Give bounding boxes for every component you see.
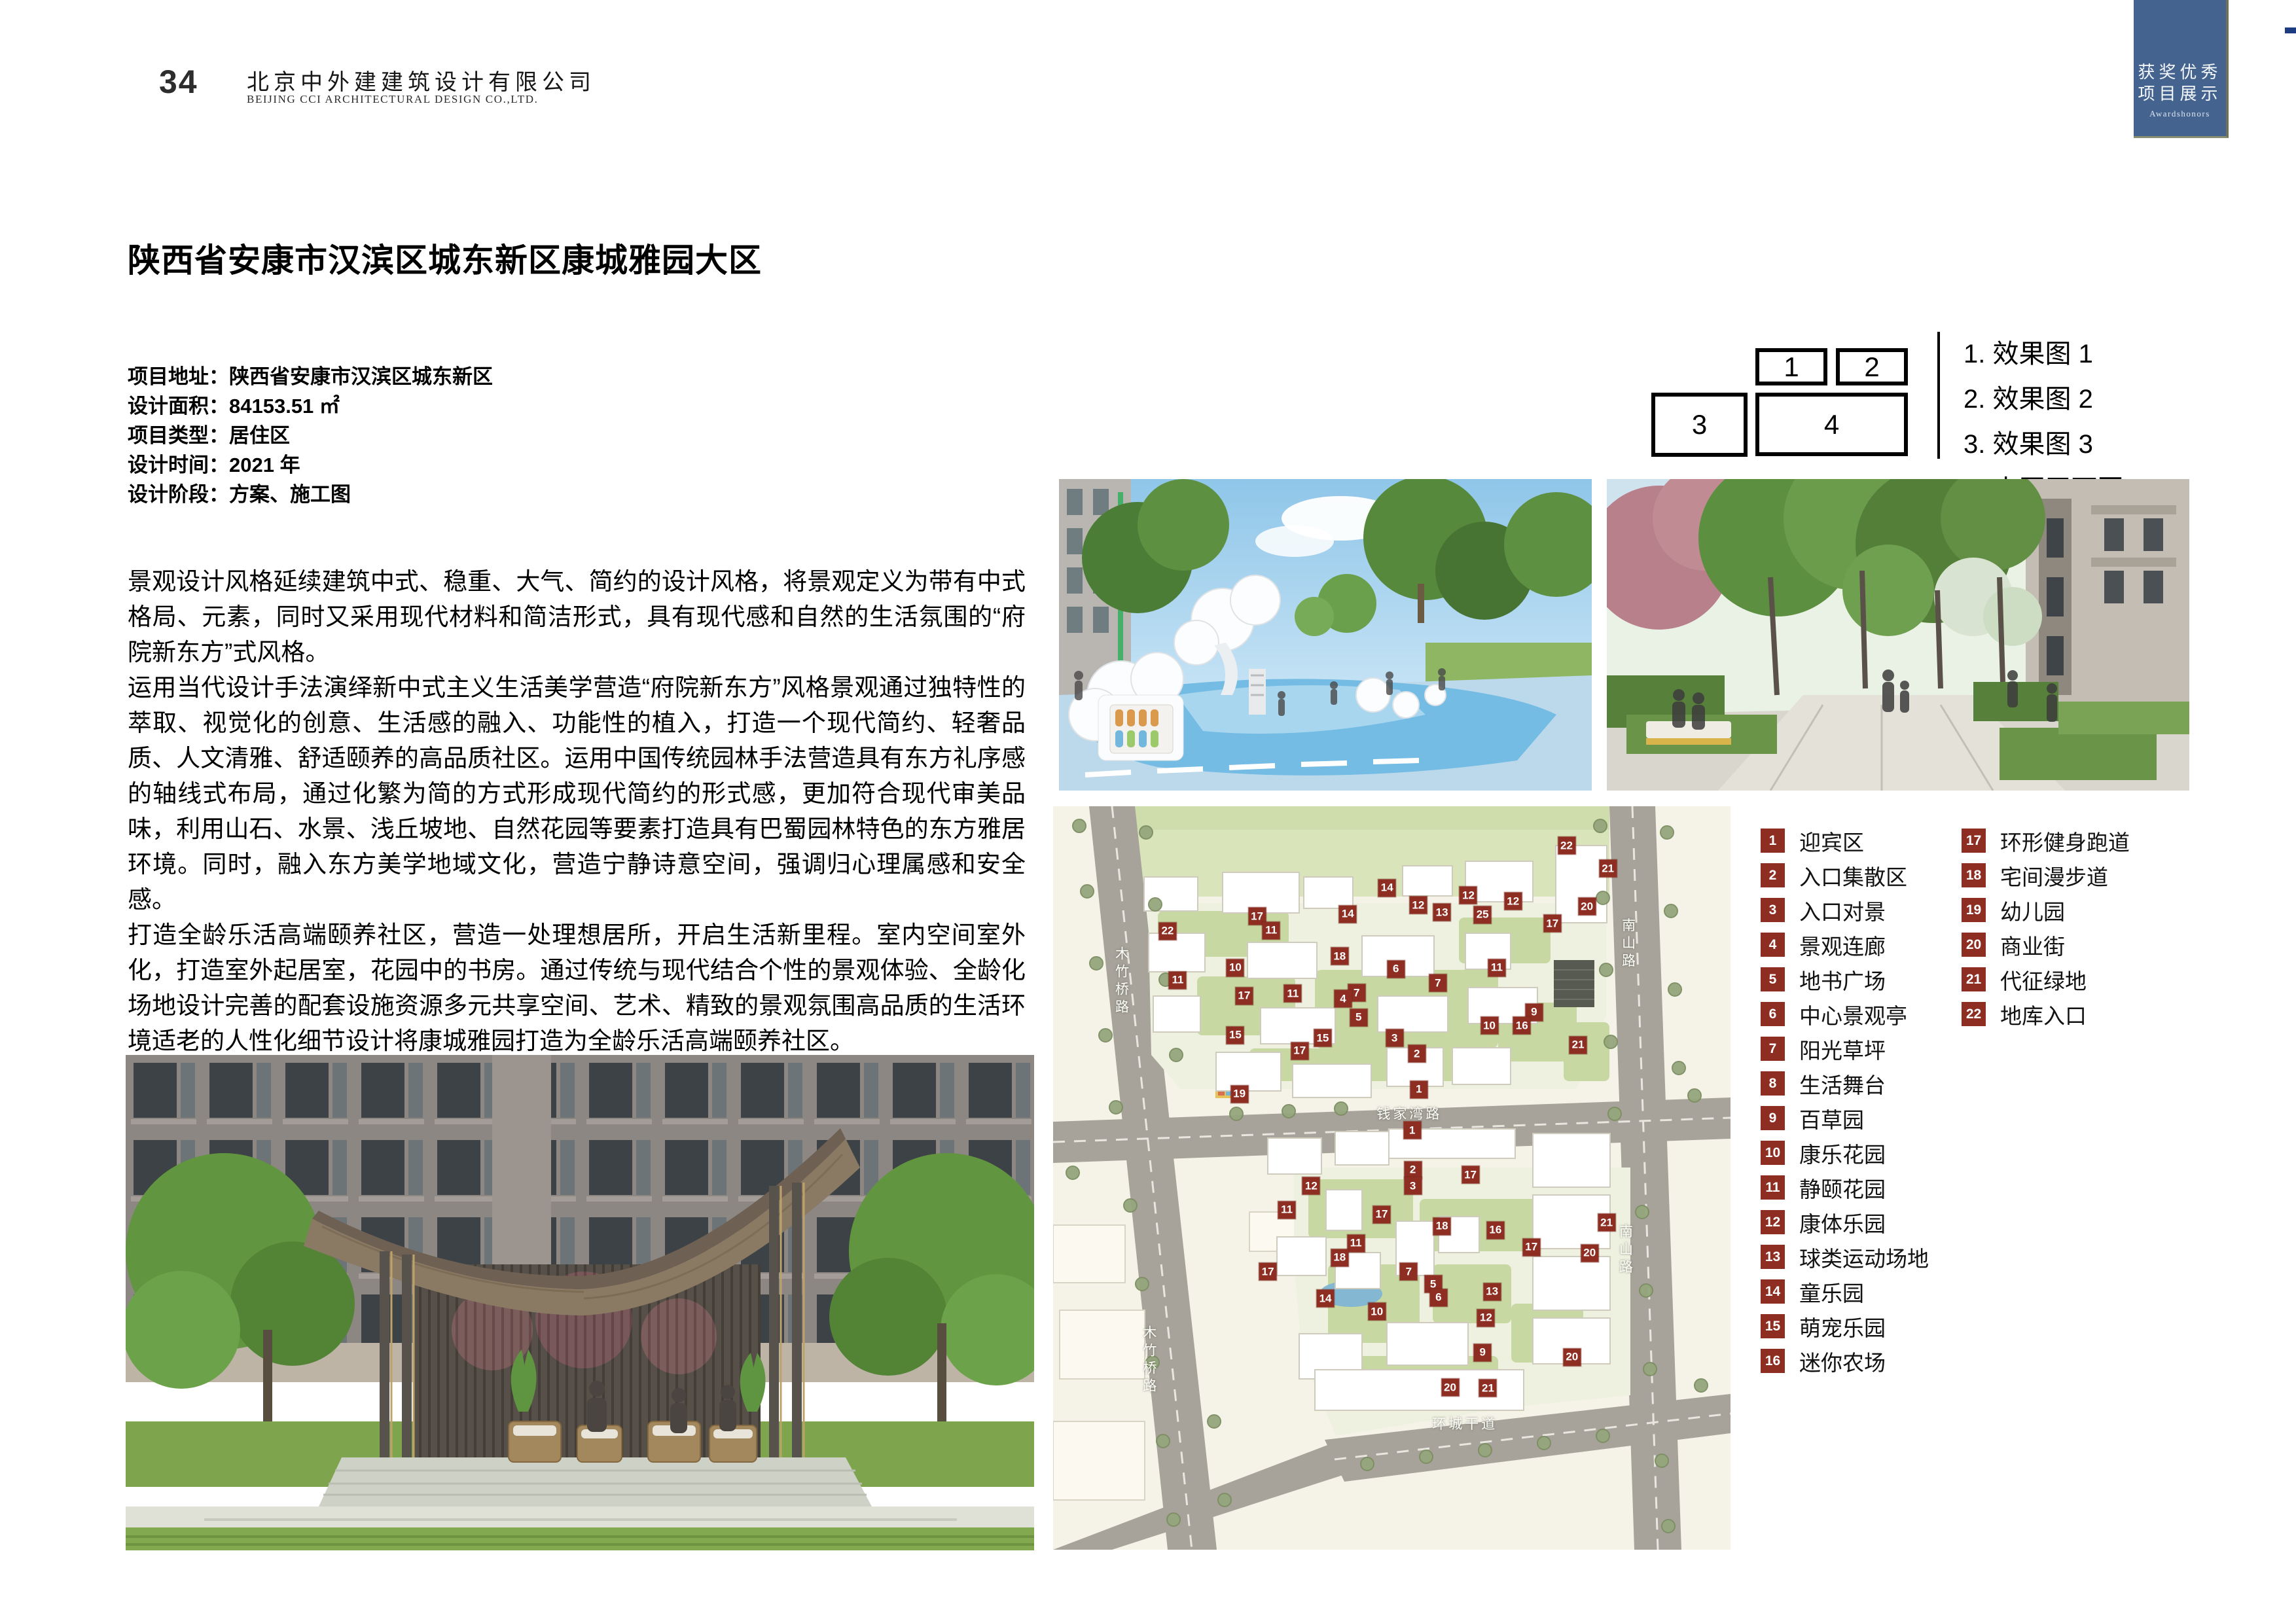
legend-label: 宅间漫步道 — [2000, 860, 2108, 891]
legend-row: 19幼儿园 — [1962, 898, 2130, 922]
legend-row: 4景观连廊 — [1761, 933, 1929, 957]
legend-row: 1迎宾区 — [1761, 829, 1929, 853]
plan-marker: 4 — [1334, 990, 1352, 1008]
plan-marker: 20 — [1441, 1379, 1459, 1397]
corner-tab-line1: 获奖优秀 — [2138, 62, 2221, 83]
info-label: 设计阶段 — [128, 483, 229, 506]
legend-number-badge: 14 — [1761, 1279, 1785, 1304]
plan-marker: 10 — [1368, 1303, 1386, 1321]
legend-row: 22地库入口 — [1962, 1002, 2130, 1026]
legend-row: 14童乐园 — [1761, 1279, 1929, 1304]
page-number: 34 — [159, 63, 198, 101]
plan-marker: 12 — [1504, 893, 1522, 910]
description-paragraph-1: 景观设计风格延续建筑中式、稳重、大气、简约的设计风格，将景观定义为带有中式格局、… — [128, 564, 1026, 670]
plan-marker: 18 — [1331, 1249, 1348, 1266]
legend-row: 2入口集散区 — [1761, 863, 1929, 887]
render-image-1-playground — [1059, 479, 1592, 791]
plan-marker: 14 — [1339, 905, 1357, 923]
road-label: 南山路 — [1615, 1224, 1635, 1277]
plan-legend: 1迎宾区2入口集散区3入口对景4景观连廊5地书广场6中心景观亭7阳光草坪8生活舞… — [1761, 829, 2193, 1404]
plan-marker: 12 — [1302, 1177, 1320, 1195]
plan-marker: 11 — [1488, 959, 1505, 976]
plan-marker: 11 — [1169, 971, 1187, 989]
plan-marker: 13 — [1433, 904, 1451, 921]
key-divider-line — [1937, 332, 1940, 459]
info-row: 项目类型居住区 — [128, 421, 848, 450]
plan-marker: 3 — [1386, 1029, 1403, 1047]
legend-row: 16迷你农场 — [1761, 1349, 1929, 1373]
info-value: 方案、施工图 — [229, 483, 351, 506]
info-label: 设计面积 — [128, 395, 229, 418]
project-info-block: 项目地址陕西省安康市汉滨区城东新区设计面积84153.51 ㎡项目类型居住区设计… — [128, 362, 848, 509]
legend-number-badge: 19 — [1962, 898, 1986, 922]
plan-marker: 21 — [1599, 860, 1617, 878]
plan-marker: 17 — [1462, 1166, 1479, 1184]
legend-row: 18宅间漫步道 — [1962, 863, 2130, 887]
legend-label: 童乐园 — [1799, 1276, 1864, 1308]
legend-label: 阳光草坪 — [1799, 1033, 1886, 1065]
key-box-1: 1 — [1755, 348, 1827, 385]
legend-number-badge: 7 — [1761, 1037, 1785, 1061]
legend-column-2: 17环形健身跑道18宅间漫步道19幼儿园20商业街21代征绿地22地库入口 — [1962, 829, 2130, 1037]
legend-row: 10康乐花园 — [1761, 1141, 1929, 1165]
road-label: 南山路 — [1618, 918, 1638, 971]
plan-marker: 14 — [1378, 879, 1396, 897]
legend-number-badge: 12 — [1761, 1210, 1785, 1234]
key-caption: 1. 效果图 1 — [1964, 332, 2123, 377]
legend-label: 地库入口 — [2000, 999, 2087, 1030]
legend-label: 百草园 — [1799, 1103, 1864, 1134]
plan-marker: 17 — [1372, 1205, 1390, 1223]
plan-marker: 11 — [1347, 1234, 1365, 1252]
site-plan-image: 2221141212132512201714171122186101177417… — [1053, 806, 1731, 1550]
description-paragraph-3: 打造全龄乐活高端颐养社区，营造一处理想居所，开启生活新里程。室内空间室外化，打造… — [128, 918, 1026, 1059]
playground-illustration — [1059, 479, 1592, 791]
road-label: 环城干道 — [1432, 1414, 1498, 1433]
plan-marker: 9 — [1474, 1344, 1492, 1361]
plan-marker: 2 — [1408, 1045, 1426, 1063]
road-label: 木竹桥路 — [1139, 1325, 1158, 1396]
legend-column-1: 1迎宾区2入口集散区3入口对景4景观连廊5地书广场6中心景观亭7阳光草坪8生活舞… — [1761, 829, 1929, 1383]
plan-marker: 1 — [1410, 1080, 1427, 1098]
legend-number-badge: 13 — [1761, 1245, 1785, 1269]
plan-marker: 17 — [1235, 987, 1253, 1005]
key-box-4: 4 — [1755, 393, 1908, 456]
legend-row: 20商业街 — [1962, 933, 2130, 957]
plan-marker: 10 — [1227, 959, 1244, 976]
legend-number-badge: 8 — [1761, 1071, 1785, 1096]
legend-label: 康乐花园 — [1799, 1137, 1886, 1169]
legend-number-badge: 5 — [1761, 967, 1785, 991]
plan-marker: 21 — [1479, 1380, 1497, 1397]
plan-marker: 22 — [1558, 837, 1575, 855]
render-image-2-walkway — [1607, 479, 2189, 791]
plan-marker: 16 — [1513, 1017, 1531, 1035]
legend-label: 康体乐园 — [1799, 1207, 1886, 1238]
legend-row: 8生活舞台 — [1761, 1071, 1929, 1096]
plan-marker: 19 — [1230, 1085, 1248, 1103]
legend-label: 商业街 — [2000, 929, 2065, 961]
plan-marker: 11 — [1278, 1201, 1296, 1219]
image-key-diagram: 1 2 3 4 1. 效果图 12. 效果图 23. 效果图 34. 小区平面图 — [1649, 330, 2179, 465]
legend-row: 6中心景观亭 — [1761, 1002, 1929, 1026]
info-value: 陕西省安康市汉滨区城东新区 — [229, 365, 493, 388]
plan-marker: 20 — [1578, 898, 1596, 916]
info-value: 84153.51 ㎡ — [229, 395, 340, 418]
awards-corner-tab: 获奖优秀 项目展示 Awardshonors — [2134, 0, 2229, 138]
site-plan-overlay: 2221141212132512201714171122186101177417… — [1053, 806, 1731, 1550]
plan-marker: 15 — [1227, 1026, 1244, 1044]
legend-row: 13球类运动场地 — [1761, 1245, 1929, 1269]
plan-marker: 2 — [1404, 1161, 1422, 1179]
company-name-en: BEIJING CCI ARCHITECTURAL DESIGN CO.,LTD… — [247, 93, 538, 106]
page-title: 陕西省安康市汉滨区城东新区康城雅园大区 — [128, 234, 1109, 281]
legend-label: 地书广场 — [1799, 964, 1886, 995]
legend-row: 15萌宠乐园 — [1761, 1314, 1929, 1338]
corner-tab-subtitle: Awardshonors — [2149, 109, 2210, 119]
info-label: 设计时间 — [128, 454, 229, 476]
legend-number-badge: 22 — [1962, 1002, 1986, 1026]
legend-number-badge: 9 — [1761, 1106, 1785, 1130]
legend-label: 入口集散区 — [1799, 860, 1907, 891]
key-caption: 2. 效果图 2 — [1964, 377, 2123, 422]
legend-number-badge: 11 — [1761, 1175, 1785, 1200]
key-box-3: 3 — [1651, 393, 1748, 457]
legend-row: 17环形健身跑道 — [1962, 829, 2130, 853]
portfolio-page: 34 北京中外建建筑设计有限公司 BEIJING CCI ARCHITECTUR… — [0, 0, 2296, 1623]
plan-marker: 20 — [1581, 1244, 1598, 1262]
plan-marker: 21 — [1598, 1214, 1615, 1232]
legend-number-badge: 15 — [1761, 1314, 1785, 1338]
legend-label: 幼儿园 — [2000, 895, 2065, 926]
walkway-illustration — [1607, 479, 2189, 791]
plan-marker: 16 — [1486, 1221, 1504, 1239]
plan-marker: 21 — [1570, 1036, 1587, 1054]
legend-row: 5地书广场 — [1761, 967, 1929, 991]
plan-marker: 6 — [1387, 960, 1405, 978]
info-row: 设计阶段方案、施工图 — [128, 480, 848, 509]
plan-marker: 17 — [1291, 1042, 1308, 1060]
info-row: 项目地址陕西省安康市汉滨区城东新区 — [128, 362, 848, 391]
legend-label: 球类运动场地 — [1799, 1241, 1929, 1273]
legend-label: 环形健身跑道 — [2000, 825, 2130, 857]
plan-marker: 10 — [1480, 1017, 1498, 1035]
plan-marker: 14 — [1317, 1290, 1335, 1308]
legend-row: 9百草园 — [1761, 1106, 1929, 1130]
plan-marker: 13 — [1483, 1283, 1501, 1300]
key-caption: 3. 效果图 3 — [1964, 422, 2123, 467]
legend-label: 静颐花园 — [1799, 1172, 1886, 1204]
plan-marker: 12 — [1477, 1309, 1495, 1327]
legend-row: 3入口对景 — [1761, 898, 1929, 922]
plan-marker: 1 — [1403, 1122, 1421, 1139]
plan-marker: 20 — [1563, 1348, 1581, 1366]
plan-marker: 5 — [1350, 1008, 1367, 1026]
legend-label: 景观连廊 — [1799, 929, 1886, 961]
plan-marker: 11 — [1284, 985, 1302, 1003]
legend-number-badge: 2 — [1761, 863, 1785, 887]
legend-row: 7阳光草坪 — [1761, 1037, 1929, 1061]
project-description: 景观设计风格延续建筑中式、稳重、大气、简约的设计风格，将景观定义为带有中式格局、… — [128, 564, 1026, 1059]
plan-marker: 6 — [1429, 1289, 1447, 1306]
plan-marker: 15 — [1314, 1029, 1331, 1047]
legend-number-badge: 18 — [1962, 863, 1986, 887]
info-label: 项目地址 — [128, 365, 229, 388]
legend-number-badge: 20 — [1962, 933, 1986, 957]
legend-label: 迷你农场 — [1799, 1346, 1886, 1377]
page-edge-dash — [2285, 27, 2296, 33]
corner-tab-line2: 项目展示 — [2138, 83, 2221, 105]
road-label: 木竹桥路 — [1111, 946, 1131, 1017]
legend-number-badge: 16 — [1761, 1349, 1785, 1373]
legend-number-badge: 17 — [1962, 829, 1986, 853]
legend-label: 迎宾区 — [1799, 825, 1864, 857]
legend-number-badge: 4 — [1761, 933, 1785, 957]
info-value: 居住区 — [229, 424, 290, 447]
plan-marker: 25 — [1474, 906, 1492, 923]
key-box-2: 2 — [1836, 348, 1908, 385]
legend-row: 11静颐花园 — [1761, 1175, 1929, 1200]
legend-label: 萌宠乐园 — [1799, 1311, 1886, 1342]
info-row: 设计面积84153.51 ㎡ — [128, 391, 848, 421]
legend-number-badge: 1 — [1761, 829, 1785, 853]
legend-row: 21代征绿地 — [1962, 967, 2130, 991]
legend-number-badge: 3 — [1761, 898, 1785, 922]
plan-marker: 12 — [1409, 897, 1427, 914]
plan-marker: 12 — [1460, 887, 1477, 904]
plan-marker: 7 — [1429, 974, 1446, 992]
legend-row: 12康体乐园 — [1761, 1210, 1929, 1234]
legend-label: 入口对景 — [1799, 895, 1886, 926]
road-label: 钱家湾路 — [1376, 1103, 1442, 1123]
plan-marker: 3 — [1404, 1177, 1422, 1195]
legend-label: 代征绿地 — [2000, 964, 2087, 995]
pavilion-illustration — [126, 1055, 1034, 1550]
plan-marker: 17 — [1543, 915, 1561, 933]
plan-marker: 7 — [1400, 1263, 1418, 1281]
info-row: 设计时间2021 年 — [128, 450, 848, 480]
legend-label: 中心景观亭 — [1799, 999, 1907, 1030]
description-paragraph-2: 运用当代设计手法演绎新中式主义生活美学营造“府院新东方”风格景观通过独特性的萃取… — [128, 670, 1026, 918]
legend-number-badge: 21 — [1962, 967, 1986, 991]
plan-marker: 11 — [1263, 921, 1280, 939]
info-label: 项目类型 — [128, 424, 229, 447]
plan-marker: 22 — [1158, 922, 1176, 940]
plan-marker: 17 — [1259, 1263, 1277, 1281]
legend-number-badge: 10 — [1761, 1141, 1785, 1165]
plan-marker: 18 — [1331, 948, 1348, 965]
plan-marker: 18 — [1433, 1217, 1451, 1235]
company-name-cn: 北京中外建建筑设计有限公司 — [247, 64, 596, 96]
render-image-3-pavilion — [126, 1055, 1034, 1550]
legend-label: 生活舞台 — [1799, 1068, 1886, 1099]
legend-number-badge: 6 — [1761, 1002, 1785, 1026]
plan-marker: 17 — [1522, 1238, 1540, 1256]
info-value: 2021 年 — [229, 454, 300, 476]
